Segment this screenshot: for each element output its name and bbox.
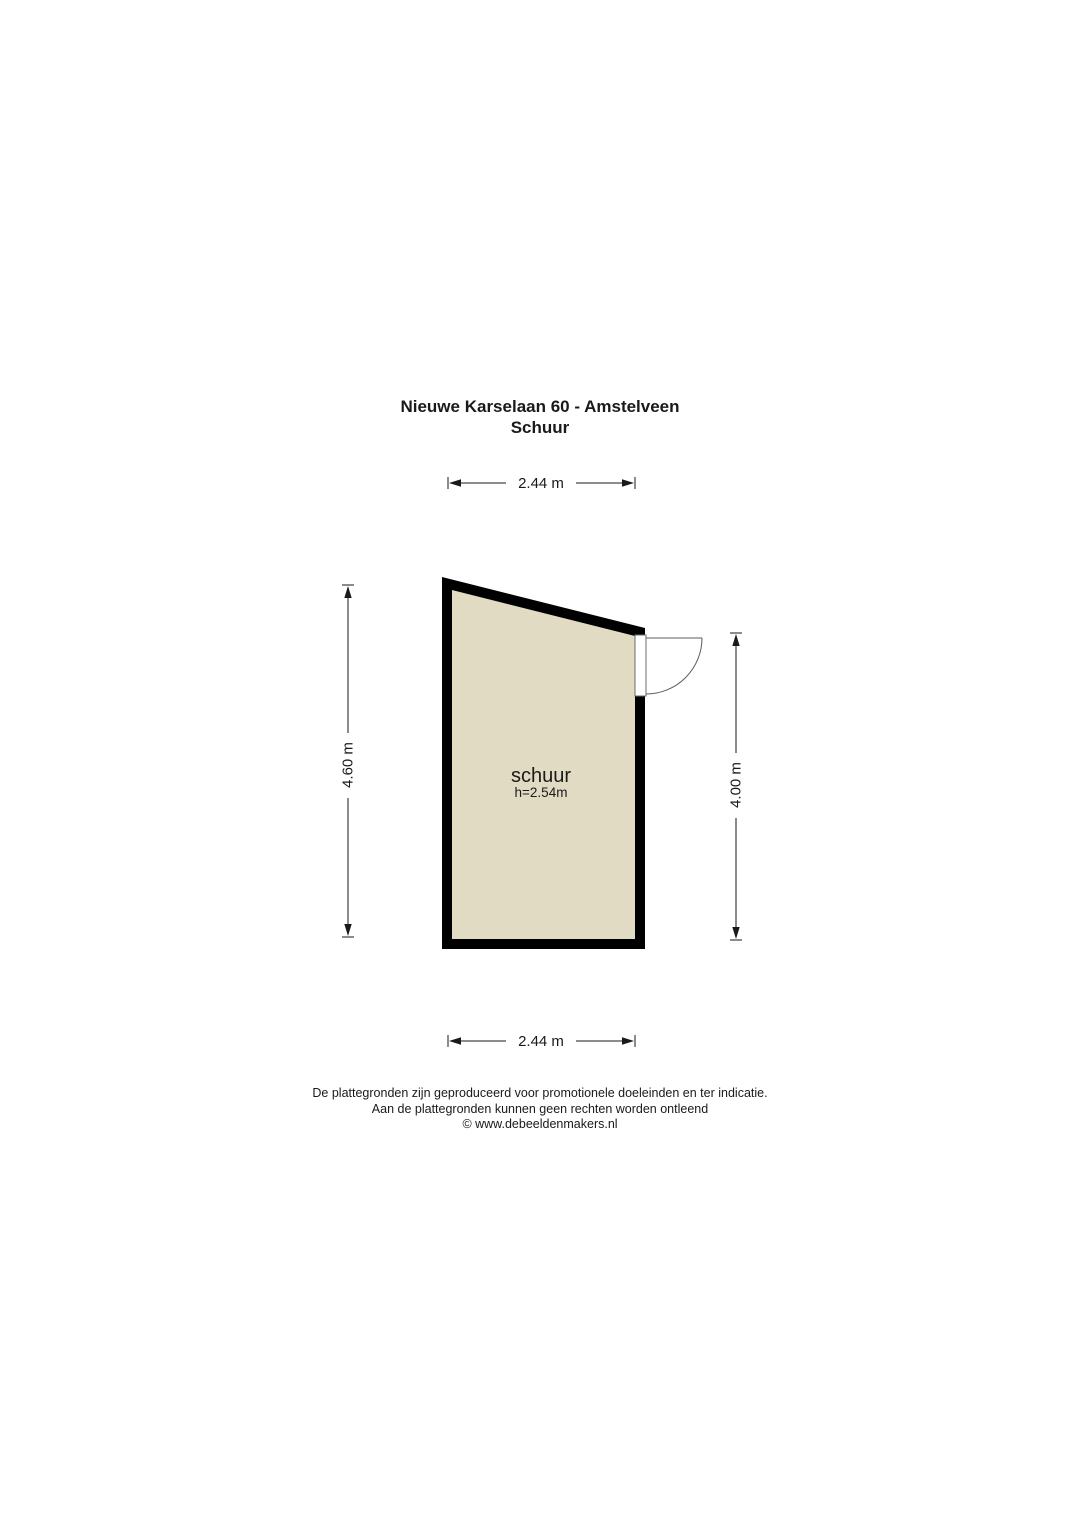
arrow-up-icon: [732, 634, 739, 646]
room-label-group: schuur h=2.54m: [511, 765, 571, 800]
shed-room: [442, 577, 645, 949]
dim-label-left: 4.60 m: [340, 742, 357, 788]
dim-label-top: 2.44 m: [518, 475, 564, 492]
arrow-left-icon: [449, 479, 461, 486]
dimension-bottom: 2.44 m: [448, 1033, 635, 1050]
arrow-right-icon: [622, 479, 634, 486]
arrow-left-icon: [449, 1037, 461, 1044]
room-height-label: h=2.54m: [515, 785, 568, 800]
arrow-up-icon: [344, 586, 351, 598]
arrow-down-icon: [732, 927, 739, 939]
arrow-right-icon: [622, 1037, 634, 1044]
dimension-top: 2.44 m: [448, 475, 635, 492]
dimension-right: 4.00 m: [728, 633, 745, 940]
dimension-left: 4.60 m: [340, 585, 357, 937]
disclaimer-line-3: © www.debeeldenmakers.nl: [0, 1117, 1080, 1133]
door-frame: [635, 635, 646, 696]
room-name-label: schuur: [511, 765, 571, 787]
arrow-down-icon: [344, 924, 351, 936]
dim-label-right: 4.00 m: [728, 762, 745, 808]
disclaimer-line-2: Aan de plattegronden kunnen geen rechten…: [0, 1102, 1080, 1118]
door-swing-arc: [646, 638, 702, 694]
dim-label-bottom: 2.44 m: [518, 1033, 564, 1050]
door-icon: [635, 635, 702, 696]
disclaimer-line-1: De plattegronden zijn geproduceerd voor …: [0, 1086, 1080, 1102]
disclaimer: De plattegronden zijn geproduceerd voor …: [0, 1086, 1080, 1133]
floorplan-page: Nieuwe Karselaan 60 - Amstelveen Schuur …: [0, 0, 1080, 1527]
floorplan-drawing: 2.44 m 2.44 m 4.60 m: [0, 0, 1080, 1527]
